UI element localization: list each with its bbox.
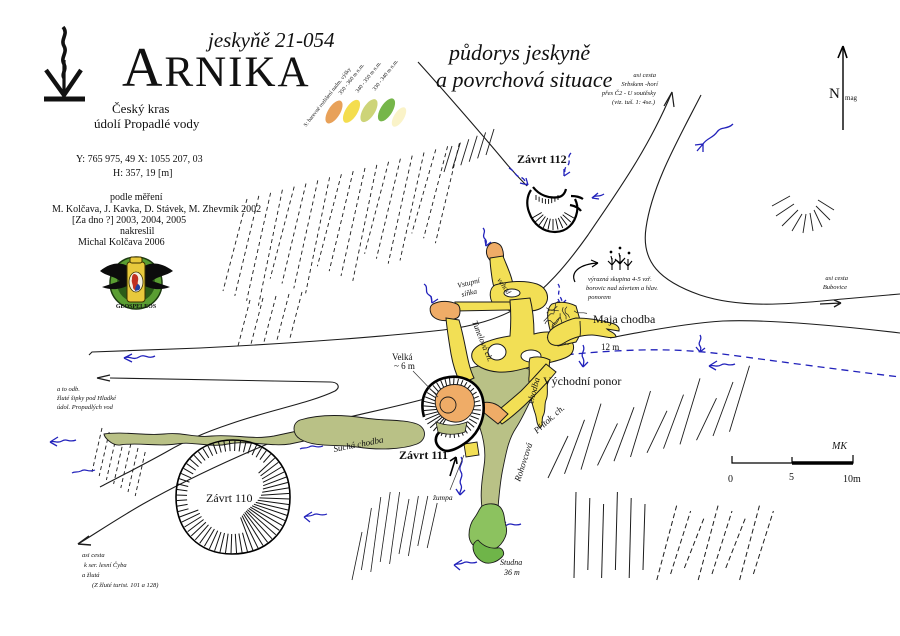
svg-text:asi cesta: asi cesta <box>82 552 105 559</box>
svg-text:půdorys jeskyně: půdorys jeskyně <box>447 40 590 65</box>
svg-text:Závrt 112: Závrt 112 <box>517 152 567 166</box>
svg-text:Maja chodba: Maja chodba <box>593 312 656 326</box>
svg-text:a povrchová situace: a povrchová situace <box>436 67 613 92</box>
svg-text:(Z žluté turist. 101 a 128): (Z žluté turist. 101 a 128) <box>92 582 158 589</box>
svg-text:podle měření: podle měření <box>110 192 163 203</box>
svg-text:Srbskem -horí: Srbskem -horí <box>621 81 659 88</box>
svg-text:Michal Kolčava 2006: Michal Kolčava 2006 <box>78 237 165 248</box>
svg-text:Český kras: Český kras <box>112 101 169 116</box>
svg-text:mag: mag <box>845 94 858 102</box>
svg-text:MK: MK <box>831 441 848 452</box>
svg-text:nakreslil: nakreslil <box>120 226 155 237</box>
svg-text:36 m: 36 m <box>503 568 520 577</box>
svg-text:12 m: 12 m <box>601 342 619 352</box>
svg-text:žumpa: žumpa <box>432 493 453 502</box>
svg-text:a to odb.: a to odb. <box>57 386 80 393</box>
svg-text:[Za dno ?] 2003, 2004, 2005: [Za dno ?] 2003, 2004, 2005 <box>72 215 186 226</box>
svg-text:výrazná skupina 4-5 vzř.: výrazná skupina 4-5 vzř. <box>588 276 652 283</box>
svg-text:H: 357, 19 [m]: H: 357, 19 [m] <box>113 168 172 179</box>
svg-text:M. Kolčava, J. Kavka, D. Stáve: M. Kolčava, J. Kavka, D. Stávek, M. Zhev… <box>52 204 261 215</box>
svg-text:~ 6 m: ~ 6 m <box>394 361 415 371</box>
svg-text:10m: 10m <box>843 474 861 485</box>
svg-text:Bubovice: Bubovice <box>823 284 847 291</box>
svg-text:5: 5 <box>789 472 794 483</box>
svg-text:a žlutá: a žlutá <box>82 572 100 579</box>
svg-text:údolí Propadlé vody: údolí Propadlé vody <box>94 116 200 131</box>
svg-text:(viz. tuš. 1: 4se.): (viz. tuš. 1: 4se.) <box>612 99 655 106</box>
svg-text:Studna: Studna <box>500 558 522 567</box>
svg-text:Y: 765 975, 49 X: 1055 207,: Y: 765 975, 49 X: 1055 207, 03 <box>76 154 203 165</box>
svg-text:k ser. lesní Čyba: k ser. lesní Čyba <box>84 561 127 569</box>
svg-text:borovic nad závrtem a hlav.: borovic nad závrtem a hlav. <box>586 285 658 292</box>
svg-text:údol. Propadlých vod: údol. Propadlých vod <box>57 404 114 411</box>
svg-text:GEOSPELEOS: GEOSPELEOS <box>116 304 157 310</box>
svg-text:asi cesta: asi cesta <box>633 72 656 79</box>
svg-text:0: 0 <box>728 474 733 485</box>
svg-text:asi cesta: asi cesta <box>825 275 848 282</box>
svg-text:N: N <box>829 86 840 102</box>
svg-text:žluté šipky pod Hladké: žluté šipky pod Hladké <box>56 395 117 402</box>
svg-text:Závrt 110: Závrt 110 <box>206 491 253 505</box>
svg-text:Závrt 111: Závrt 111 <box>399 448 448 462</box>
svg-text:ponorem: ponorem <box>587 294 611 301</box>
svg-text:Východní ponor: Východní ponor <box>543 374 621 388</box>
svg-text:přes Č2 - U soutěsky: přes Č2 - U soutěsky <box>601 89 656 97</box>
